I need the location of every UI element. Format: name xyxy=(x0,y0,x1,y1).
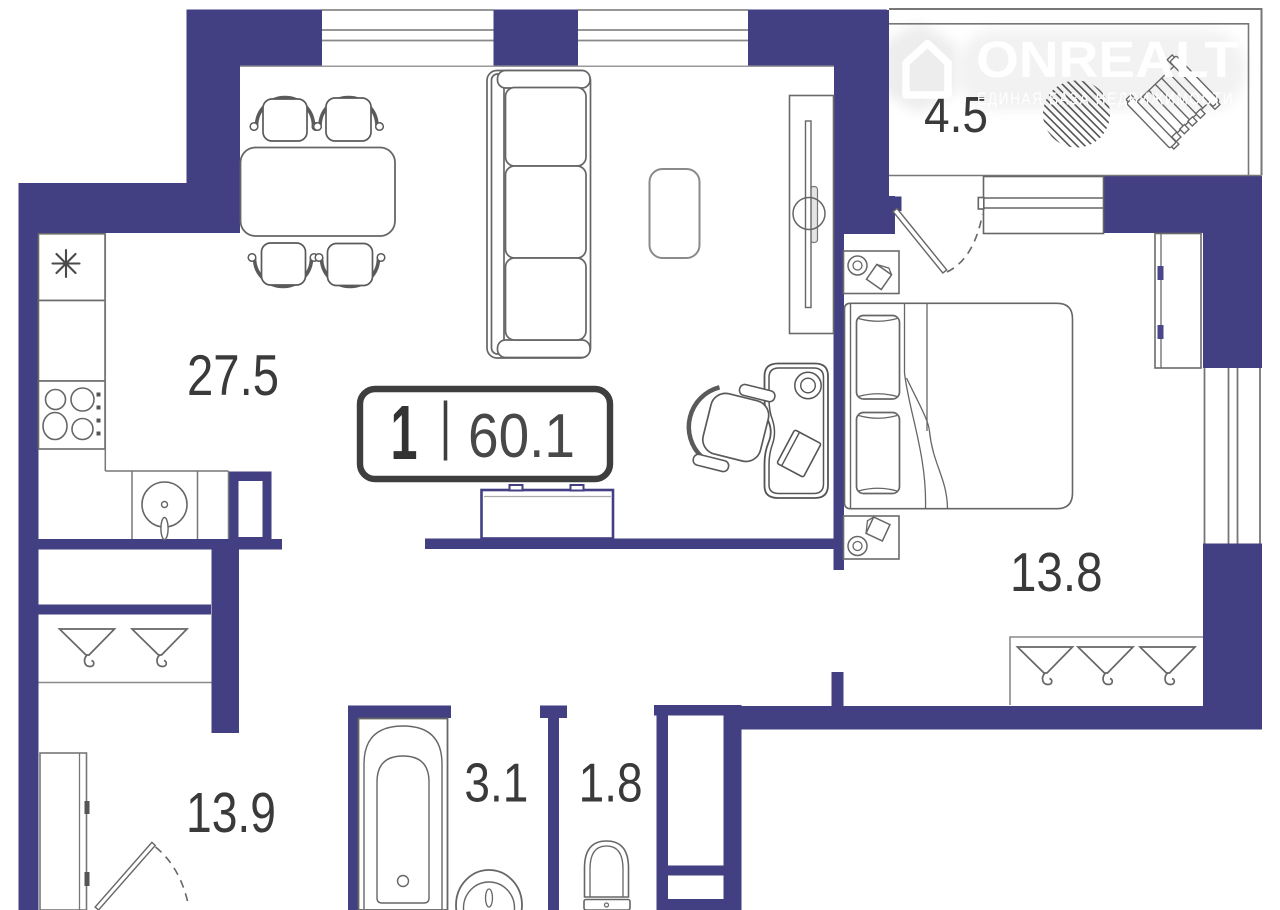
svg-text:27.5: 27.5 xyxy=(187,344,279,408)
svg-text:1.8: 1.8 xyxy=(579,751,643,813)
svg-text:3.1: 3.1 xyxy=(464,751,528,813)
svg-text:13.8: 13.8 xyxy=(1010,541,1103,603)
svg-text:60.1: 60.1 xyxy=(468,402,575,471)
svg-text:ONREALT: ONREALT xyxy=(976,31,1238,88)
svg-text:13.9: 13.9 xyxy=(186,781,276,844)
svg-text:ЕДИНАЯ БАЗА НЕДВИЖИМОСТИ: ЕДИНАЯ БАЗА НЕДВИЖИМОСТИ xyxy=(977,89,1234,109)
svg-text:1: 1 xyxy=(391,390,418,476)
